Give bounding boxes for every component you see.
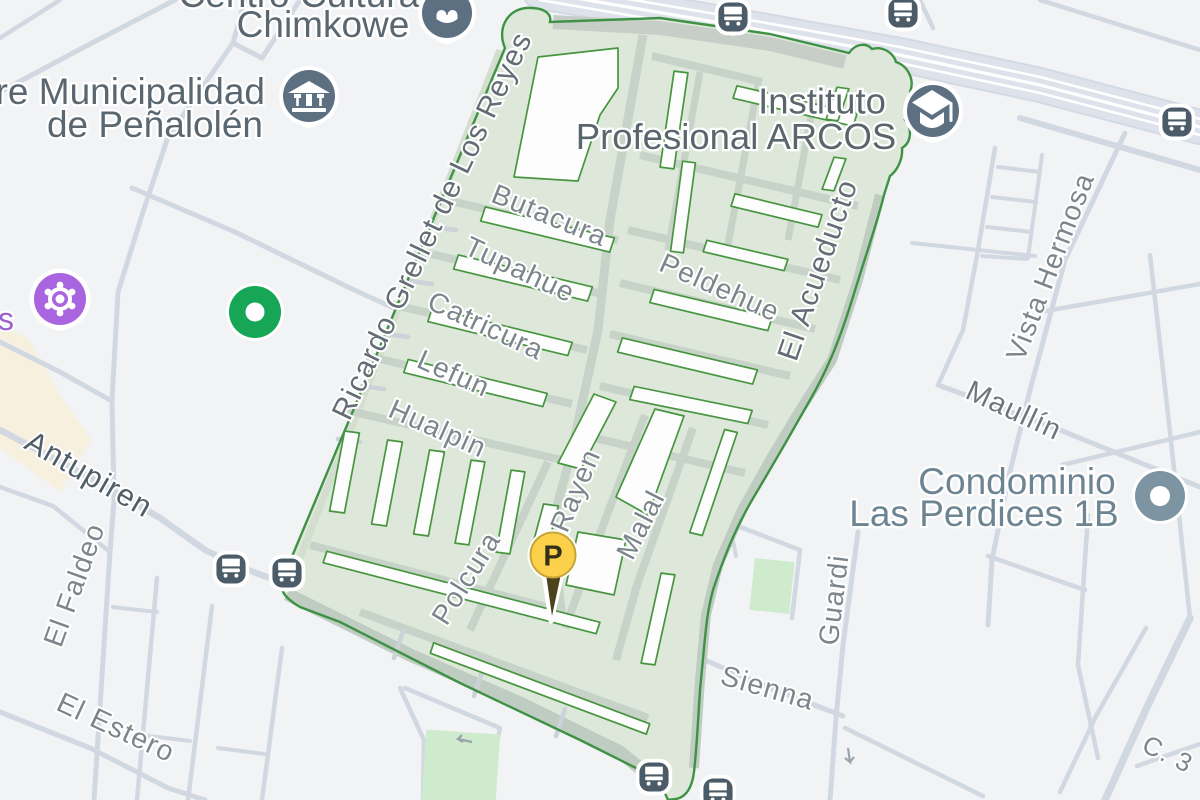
svg-text:Profesional ARCOS: Profesional ARCOS: [576, 116, 897, 157]
svg-text:Las Perdices 1B: Las Perdices 1B: [849, 493, 1118, 534]
svg-text:s: s: [0, 301, 15, 337]
svg-text:Chimkowe: Chimkowe: [237, 4, 410, 45]
svg-text:P: P: [543, 541, 562, 573]
svg-text:de Peñalolén: de Peñalolén: [47, 104, 263, 145]
